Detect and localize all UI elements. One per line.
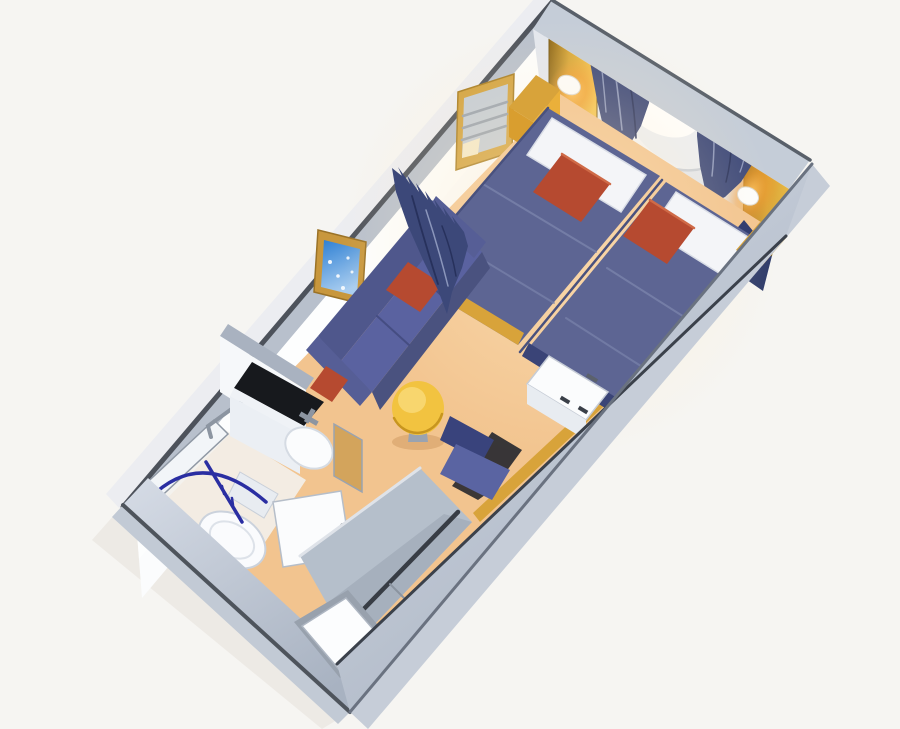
picture-detail [336, 274, 340, 278]
table-highlight [398, 387, 426, 413]
round-coffee-table [392, 381, 444, 450]
picture-detail [341, 286, 345, 290]
stateroom-floorplan-rendering [0, 0, 900, 729]
floorplan-canvas [0, 0, 900, 729]
picture-detail [328, 260, 332, 264]
shower-detail [232, 498, 233, 505]
